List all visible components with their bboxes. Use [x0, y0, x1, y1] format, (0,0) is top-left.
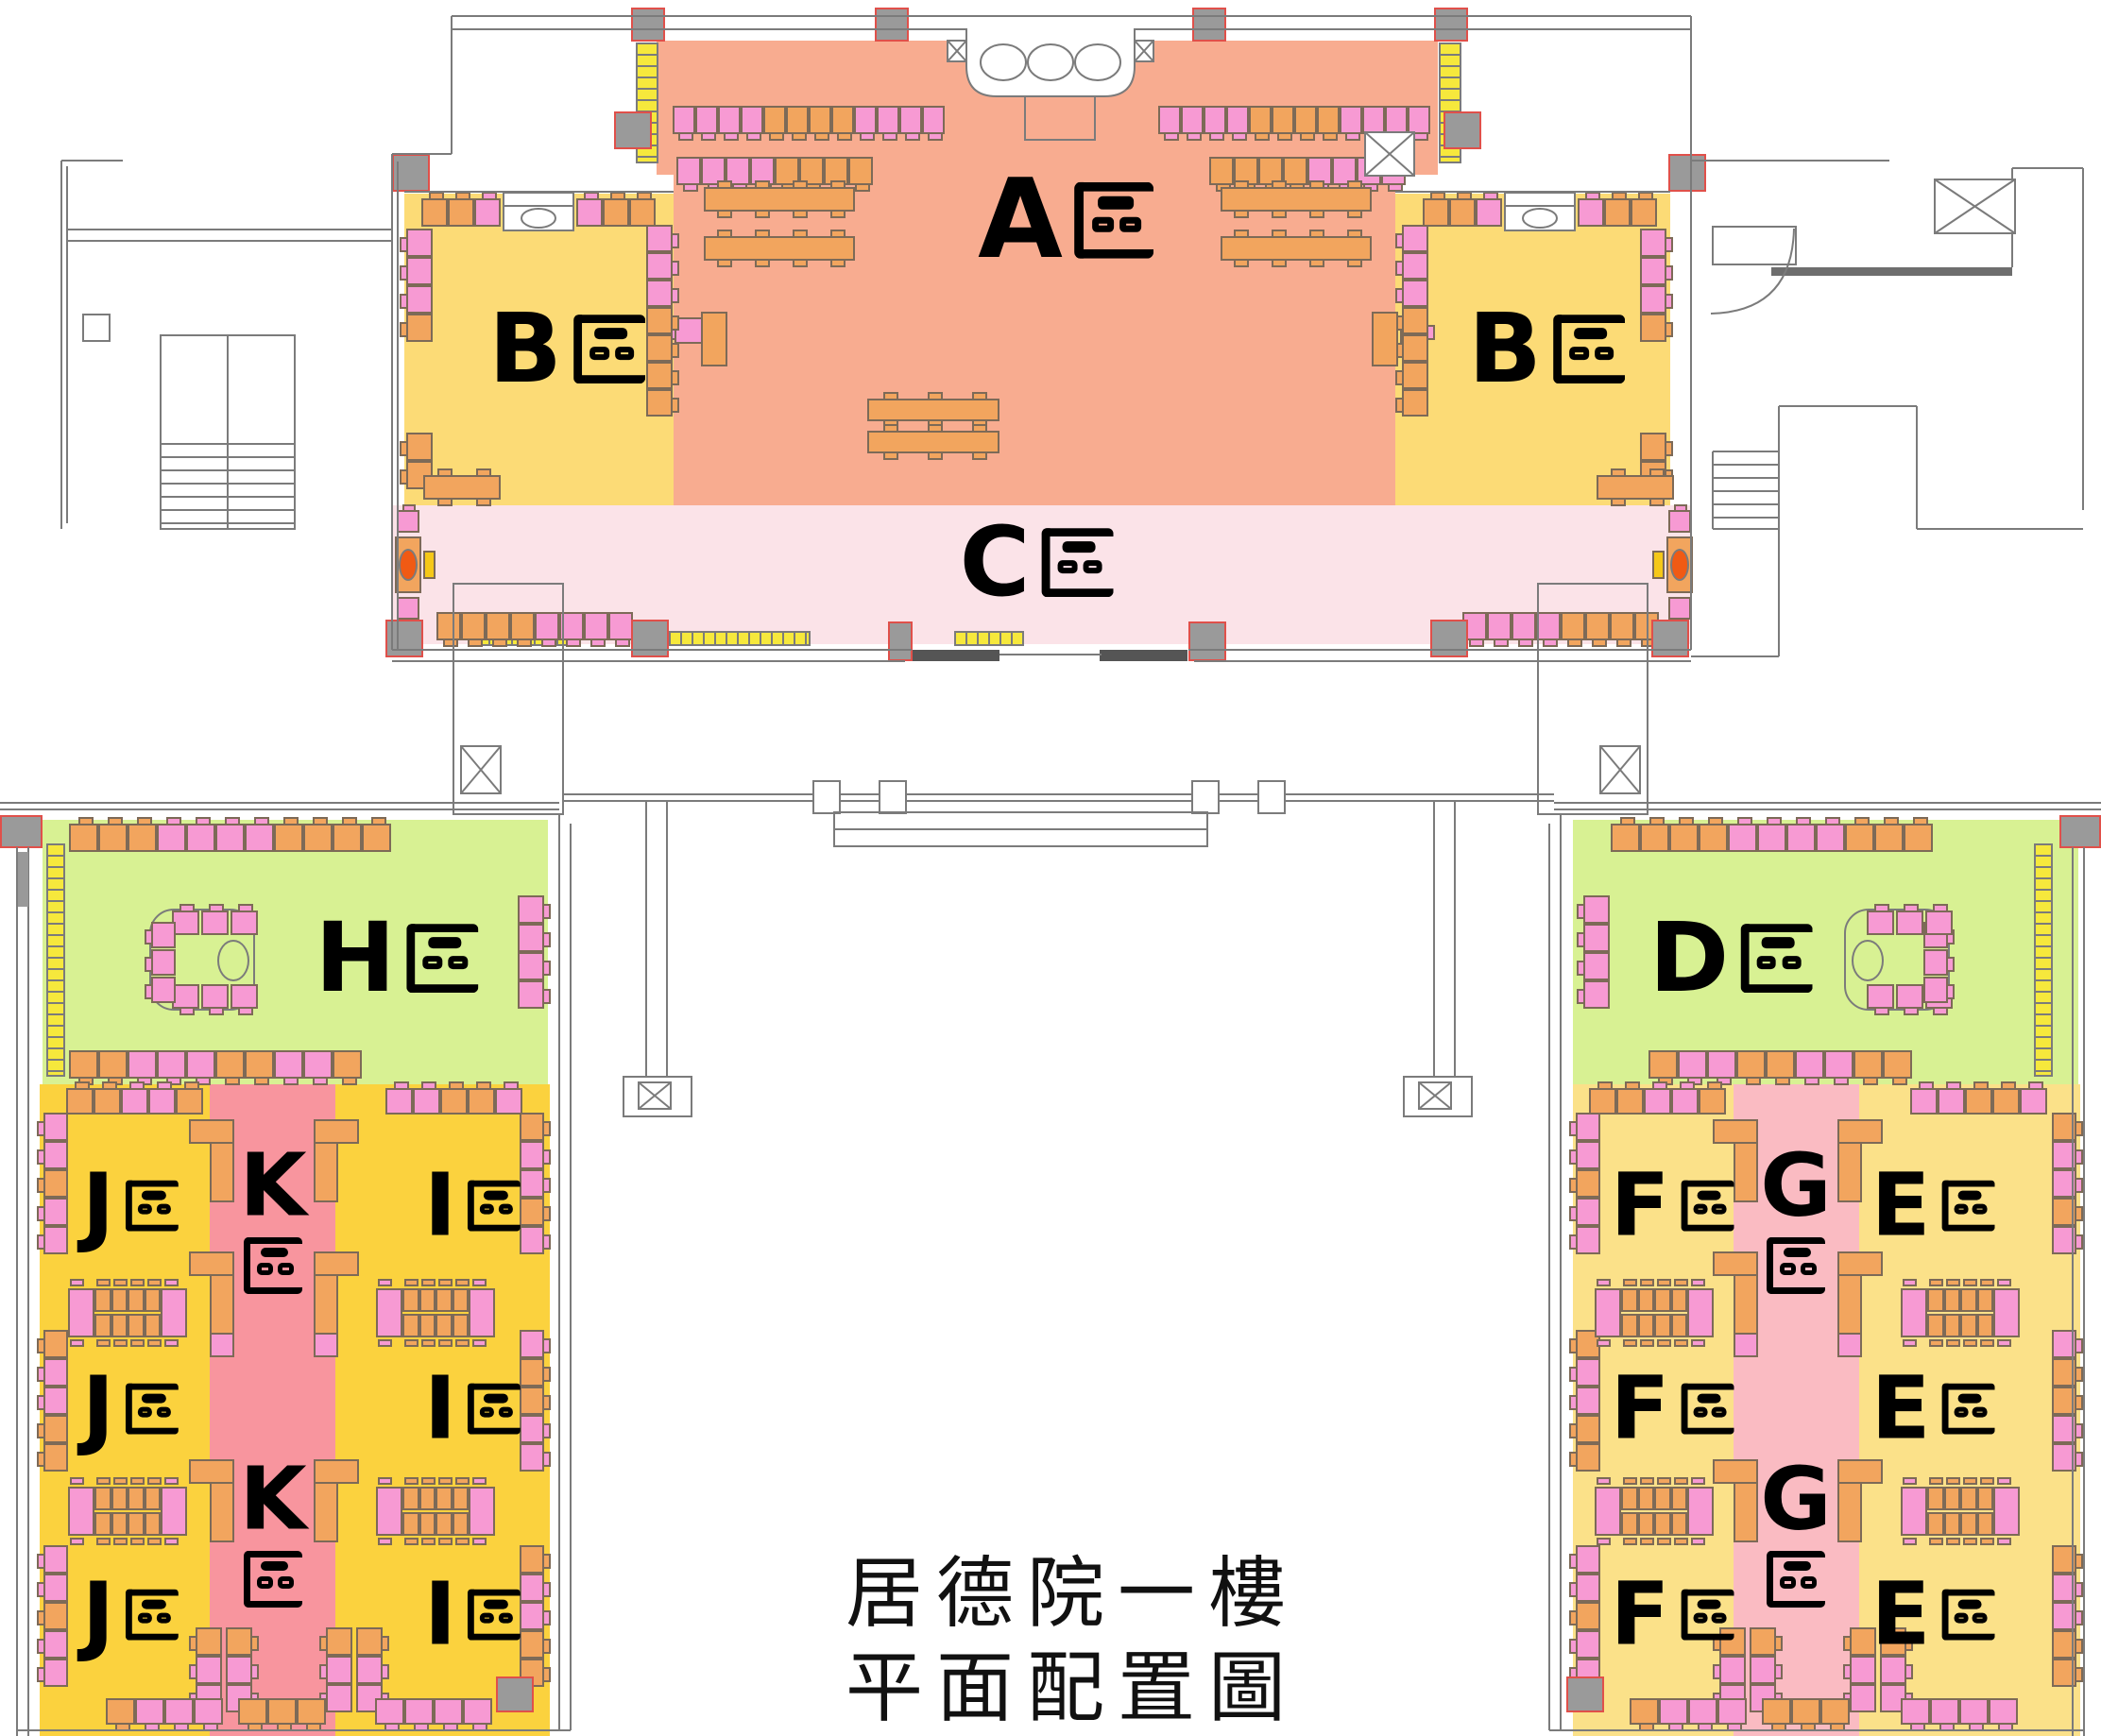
table-cell: [1960, 1314, 1977, 1337]
chair-back: [455, 1339, 470, 1347]
seat: [406, 314, 433, 342]
table-cell: [1671, 1487, 1688, 1510]
seat: [1795, 1050, 1824, 1079]
zone-letter: G: [1760, 1148, 1832, 1226]
chair-back: [1391, 132, 1406, 141]
chair-back: [542, 1423, 551, 1438]
chair-back: [2075, 1452, 2083, 1467]
chair-back: [130, 1538, 145, 1545]
seat: [2052, 1113, 2076, 1141]
chair-back: [400, 294, 408, 309]
seat: [1576, 1387, 1600, 1415]
qu-glyph: [1681, 1181, 1734, 1232]
chair-back: [113, 1339, 128, 1347]
seat: [66, 1088, 94, 1115]
seat: [1576, 1141, 1600, 1169]
plan-title-line1: 居德院一樓: [824, 1547, 1321, 1642]
chair-back: [746, 132, 761, 141]
seat: [1910, 1088, 1938, 1115]
seat: [1576, 1113, 1600, 1141]
window-strip: [46, 843, 65, 1077]
chair-back: [78, 817, 94, 825]
zone-label-A: A: [978, 171, 1153, 269]
seat: [406, 257, 433, 285]
seat: [69, 1050, 98, 1079]
seat: [226, 1656, 252, 1684]
seat: [2052, 1602, 2076, 1630]
zone-letter: J: [82, 1576, 114, 1655]
table: [704, 236, 855, 261]
chair-back: [671, 343, 679, 358]
table-cell: [1927, 1314, 1944, 1337]
seat: [43, 1169, 68, 1198]
zone-label-I: I: [424, 1167, 521, 1246]
seat: [1640, 824, 1669, 852]
seat: [397, 597, 419, 620]
long-table: [1595, 1485, 1714, 1538]
seat: [128, 824, 157, 852]
seat: [1867, 984, 1894, 1009]
chair-back: [1430, 192, 1445, 200]
chair-back: [1946, 1339, 1960, 1347]
seat: [194, 1698, 223, 1725]
chair-back: [37, 1149, 45, 1165]
chair-back: [517, 638, 532, 647]
chair-back: [1946, 957, 1955, 972]
seat: [1640, 257, 1666, 285]
seat: [718, 106, 741, 134]
seat: [1576, 1169, 1600, 1198]
chair-back: [671, 370, 679, 385]
chair-back: [421, 1081, 436, 1090]
chair-back: [1665, 294, 1673, 309]
chair-back: [1963, 1538, 1977, 1545]
seat: [520, 1630, 544, 1659]
zone-letter: F: [1611, 1370, 1670, 1449]
chair-back: [1691, 1538, 1705, 1545]
table-cell: [453, 1487, 470, 1510]
chair-back: [905, 132, 920, 141]
chair-back: [566, 638, 581, 647]
table-end: [161, 1288, 187, 1337]
table-seg: [189, 1119, 234, 1144]
seat: [2052, 1330, 2076, 1358]
chair-back: [248, 1723, 263, 1731]
chair-back: [1963, 1339, 1977, 1347]
chair-back: [1775, 1077, 1790, 1085]
seat: [922, 106, 945, 134]
chair-back: [882, 132, 897, 141]
chair-back: [1652, 1081, 1667, 1090]
chair-back: [1272, 230, 1287, 238]
chair-back: [381, 1636, 389, 1651]
chair-back: [1929, 1339, 1943, 1347]
seat: [1576, 1198, 1600, 1226]
chair-back: [250, 1636, 259, 1651]
seat: [43, 1198, 68, 1226]
chair-back: [37, 1639, 45, 1654]
seat: [215, 824, 245, 852]
seat: [1845, 824, 1874, 852]
chair-back: [717, 210, 732, 218]
seat: [1762, 1698, 1791, 1725]
table-seg: [314, 1482, 338, 1542]
seat: [157, 1050, 186, 1079]
chair-back: [381, 1664, 389, 1679]
chair-back: [1874, 904, 1889, 912]
chair-back: [421, 1339, 436, 1347]
seat: [520, 1415, 544, 1443]
table-cell: [1944, 1512, 1961, 1536]
elevator-icon-left-wing: [461, 746, 501, 793]
zone-label-F: F: [1611, 1370, 1734, 1449]
chair-back: [209, 1007, 224, 1015]
seat: [1402, 307, 1428, 334]
table-cell: [94, 1487, 111, 1510]
chair-back: [1892, 1077, 1907, 1085]
seat: [518, 980, 544, 1009]
chair-back: [1612, 192, 1627, 200]
zone-label-K-qu: [244, 1551, 302, 1608]
qu-glyph: [468, 1384, 521, 1435]
seat: [43, 1574, 68, 1602]
chair-back: [2075, 1367, 2083, 1382]
qu-glyph: [573, 315, 645, 383]
seat: [1576, 1443, 1600, 1472]
chair-back: [1623, 1538, 1637, 1545]
table-seg: [210, 1274, 234, 1335]
chair-back: [541, 638, 556, 647]
chair-back: [476, 498, 491, 506]
seat: [1640, 285, 1666, 314]
zone-letter: B: [488, 306, 562, 393]
chair-back: [96, 1339, 111, 1347]
chair-back: [1665, 322, 1673, 337]
chair-back: [1863, 1077, 1878, 1085]
chair-back: [542, 1121, 551, 1136]
chair-back: [2075, 1582, 2083, 1597]
table-cell: [1927, 1288, 1944, 1312]
seat: [43, 1330, 68, 1358]
chair-back: [404, 1279, 418, 1286]
table-cell: [419, 1314, 436, 1337]
chair-back: [472, 1477, 487, 1485]
table-cell: [402, 1314, 419, 1337]
chair-back: [1904, 904, 1919, 912]
chair-back: [1804, 1077, 1819, 1085]
chair-back: [542, 1234, 551, 1250]
table-cell: [145, 1487, 162, 1510]
chair-back: [1665, 237, 1673, 252]
chair-back: [113, 1477, 128, 1485]
table-end: [469, 1487, 495, 1536]
chair-back: [438, 1339, 453, 1347]
chair-back: [378, 1279, 392, 1286]
chair-back: [1649, 498, 1665, 506]
chair-back: [792, 132, 807, 141]
chair-back: [468, 638, 483, 647]
chair-back: [179, 904, 195, 912]
chair-back: [1597, 1538, 1611, 1545]
l-table: [189, 1119, 234, 1202]
zone-label-D: D: [1649, 915, 1813, 1002]
seat: [1896, 984, 1923, 1009]
chair-back: [319, 1636, 328, 1651]
seat: [646, 225, 673, 252]
chair-back: [437, 468, 453, 477]
seat: [1487, 612, 1512, 640]
column: [875, 8, 909, 42]
chair-back: [678, 132, 693, 141]
seat: [1750, 1627, 1776, 1656]
table-seg: [314, 1274, 338, 1335]
seat: [245, 824, 274, 852]
stove-table: [1666, 536, 1693, 593]
chair-back: [1691, 1279, 1705, 1286]
chair-back: [96, 1538, 111, 1545]
chair-back: [671, 261, 679, 276]
seat: [201, 911, 229, 935]
chair-back: [1980, 1339, 1994, 1347]
chair-back: [225, 1077, 240, 1085]
seat: [1423, 198, 1449, 227]
table-cell: [1671, 1512, 1688, 1536]
seat: [1736, 1050, 1766, 1079]
chair-back: [1767, 817, 1782, 825]
seat: [1249, 106, 1272, 134]
elevator-icon-left-mid: [639, 1082, 671, 1109]
zone-label-H: H: [315, 915, 478, 1002]
table-seg: [1837, 1274, 1862, 1335]
table-cell: [1638, 1512, 1655, 1536]
table-cell: [128, 1288, 145, 1312]
chair-back: [37, 1178, 45, 1193]
seat: [1576, 1602, 1600, 1630]
chair-back: [1569, 1639, 1578, 1654]
chair-back: [164, 1279, 179, 1286]
chair-back: [1997, 1279, 2011, 1286]
chair-back: [1483, 192, 1498, 200]
seat: [1402, 389, 1428, 417]
chair-back: [2075, 1178, 2083, 1193]
seat: [1786, 824, 1816, 852]
seat: [186, 1050, 215, 1079]
stove-burner: [1670, 549, 1689, 581]
seat: [520, 1387, 544, 1415]
table-cell: [1621, 1314, 1638, 1337]
zone-label-F: F: [1611, 1167, 1734, 1246]
column: [1651, 620, 1689, 657]
long-table: [68, 1485, 187, 1538]
chair-back: [1577, 989, 1585, 1004]
chair-back: [1980, 1279, 1994, 1286]
chair-back: [277, 1723, 292, 1731]
chair-back: [1913, 817, 1928, 825]
plan-title: 居德院一樓 平面配置圖: [824, 1547, 1321, 1736]
chair-back: [1904, 1007, 1919, 1015]
chair-back: [671, 315, 679, 331]
seat: [520, 1574, 544, 1602]
chair-back: [1737, 817, 1752, 825]
chair-back: [1569, 1395, 1578, 1410]
chair-back: [2075, 1121, 2083, 1136]
chair-back: [2075, 1667, 2083, 1682]
chair-back: [1963, 1477, 1977, 1485]
seat: [1317, 106, 1340, 134]
chair-back: [1746, 1077, 1761, 1085]
chair-back: [1774, 1664, 1783, 1679]
seat: [404, 1698, 434, 1725]
chair-back: [196, 817, 211, 825]
seat: [1158, 106, 1181, 134]
chair-back: [972, 424, 987, 433]
stove-burner: [399, 549, 418, 581]
seat: [786, 106, 809, 134]
chair-back: [1272, 210, 1287, 218]
seat: [1294, 106, 1317, 134]
chair-back: [1234, 230, 1249, 238]
zone-letter: D: [1649, 915, 1730, 1002]
chair-back: [1874, 1007, 1889, 1015]
seat: [362, 824, 391, 852]
zone-label-I: I: [424, 1370, 521, 1449]
table-cell: [1960, 1288, 1977, 1312]
seat: [1850, 1684, 1876, 1712]
chair-back: [1969, 1723, 1984, 1731]
seat: [1576, 1545, 1600, 1574]
zone-letter: B: [1468, 306, 1542, 393]
table-cell: [436, 1487, 453, 1510]
chair-back: [164, 1339, 179, 1347]
table-cell: [419, 1288, 436, 1312]
chair-back: [1597, 1477, 1611, 1485]
chair-back: [1680, 1081, 1695, 1090]
seat: [297, 1698, 326, 1725]
chair-back: [1657, 1339, 1671, 1347]
seat: [215, 1050, 245, 1079]
chair-back: [1585, 192, 1600, 200]
chair-back: [717, 180, 732, 189]
table-seg: [1837, 1459, 1883, 1484]
chair-back: [883, 451, 898, 460]
chair-back: [115, 1723, 130, 1731]
chair-back: [1255, 132, 1270, 141]
seat: [1561, 612, 1585, 640]
chair-back: [1413, 132, 1428, 141]
table-seg: [210, 1142, 234, 1202]
chair-back: [37, 1452, 45, 1467]
chair-back: [147, 1538, 162, 1545]
table-cell: [453, 1512, 470, 1536]
table-cell: [1927, 1512, 1944, 1536]
chair-back: [472, 1279, 487, 1286]
qu-glyph: [244, 1237, 302, 1294]
seat: [1867, 911, 1894, 935]
chair-back: [421, 1538, 436, 1545]
chair-back: [542, 1338, 551, 1353]
chair-back: [179, 1007, 195, 1015]
chair-back: [37, 1423, 45, 1438]
column: [2059, 815, 2101, 848]
left-annex-staircase: [61, 161, 392, 529]
seat: [848, 157, 873, 185]
seat: [520, 1545, 544, 1574]
seat: [406, 433, 433, 461]
seat: [98, 824, 128, 852]
chair-back: [1946, 1279, 1960, 1286]
chair-back: [384, 1723, 400, 1731]
seat: [1989, 1698, 2018, 1725]
seat: [576, 198, 603, 227]
chair-back: [928, 392, 943, 400]
seat: [333, 824, 362, 852]
chair-back: [1674, 1538, 1688, 1545]
column: [1188, 621, 1226, 661]
seat: [461, 612, 486, 640]
chair-back: [1569, 1423, 1578, 1438]
table-end: [1734, 1333, 1758, 1357]
chair-back: [1691, 1477, 1705, 1485]
seat: [148, 1088, 176, 1115]
chair-back: [1569, 1206, 1578, 1221]
seat: [1476, 198, 1502, 227]
chair-back: [1980, 1477, 1994, 1485]
seat: [356, 1627, 383, 1656]
chair-back: [37, 1554, 45, 1569]
column: [631, 620, 669, 657]
chair-back: [166, 817, 181, 825]
chair-back: [1830, 1723, 1845, 1731]
chair-back: [542, 1582, 551, 1597]
seat: [629, 198, 656, 227]
seat: [326, 1627, 352, 1656]
seat: [646, 389, 673, 417]
seat: [741, 106, 763, 134]
zone-letter: E: [1871, 1370, 1931, 1449]
table-seg: [1837, 1142, 1862, 1202]
chair-back: [75, 1081, 90, 1090]
seat: [43, 1630, 68, 1659]
chair-back: [542, 989, 551, 1004]
chair-back: [283, 817, 299, 825]
chair-back: [855, 183, 870, 192]
chair-back: [1569, 1338, 1578, 1353]
right-annex-walls: [1691, 161, 2083, 656]
qu-glyph: [1681, 1384, 1734, 1435]
seat: [43, 1141, 68, 1169]
chair-back: [443, 1723, 458, 1731]
chair-back: [717, 230, 732, 238]
chair-back: [147, 1279, 162, 1286]
chair-back: [1577, 932, 1585, 947]
chair-back: [492, 638, 507, 647]
qu-glyph: [1941, 1181, 1994, 1232]
table-cell: [94, 1512, 111, 1536]
seat: [1904, 824, 1933, 852]
chair-back: [1843, 1664, 1852, 1679]
seat: [520, 1443, 544, 1472]
seat: [375, 1698, 404, 1725]
seat: [1901, 1698, 1930, 1725]
chair-back: [1668, 1723, 1683, 1731]
long-table: [1595, 1286, 1714, 1339]
chair-back: [1640, 1477, 1654, 1485]
chair-back: [37, 1367, 45, 1382]
chair-back: [1674, 1339, 1688, 1347]
table-cell: [1654, 1314, 1671, 1337]
chair-back: [313, 1077, 328, 1085]
chair-back: [70, 1477, 84, 1485]
